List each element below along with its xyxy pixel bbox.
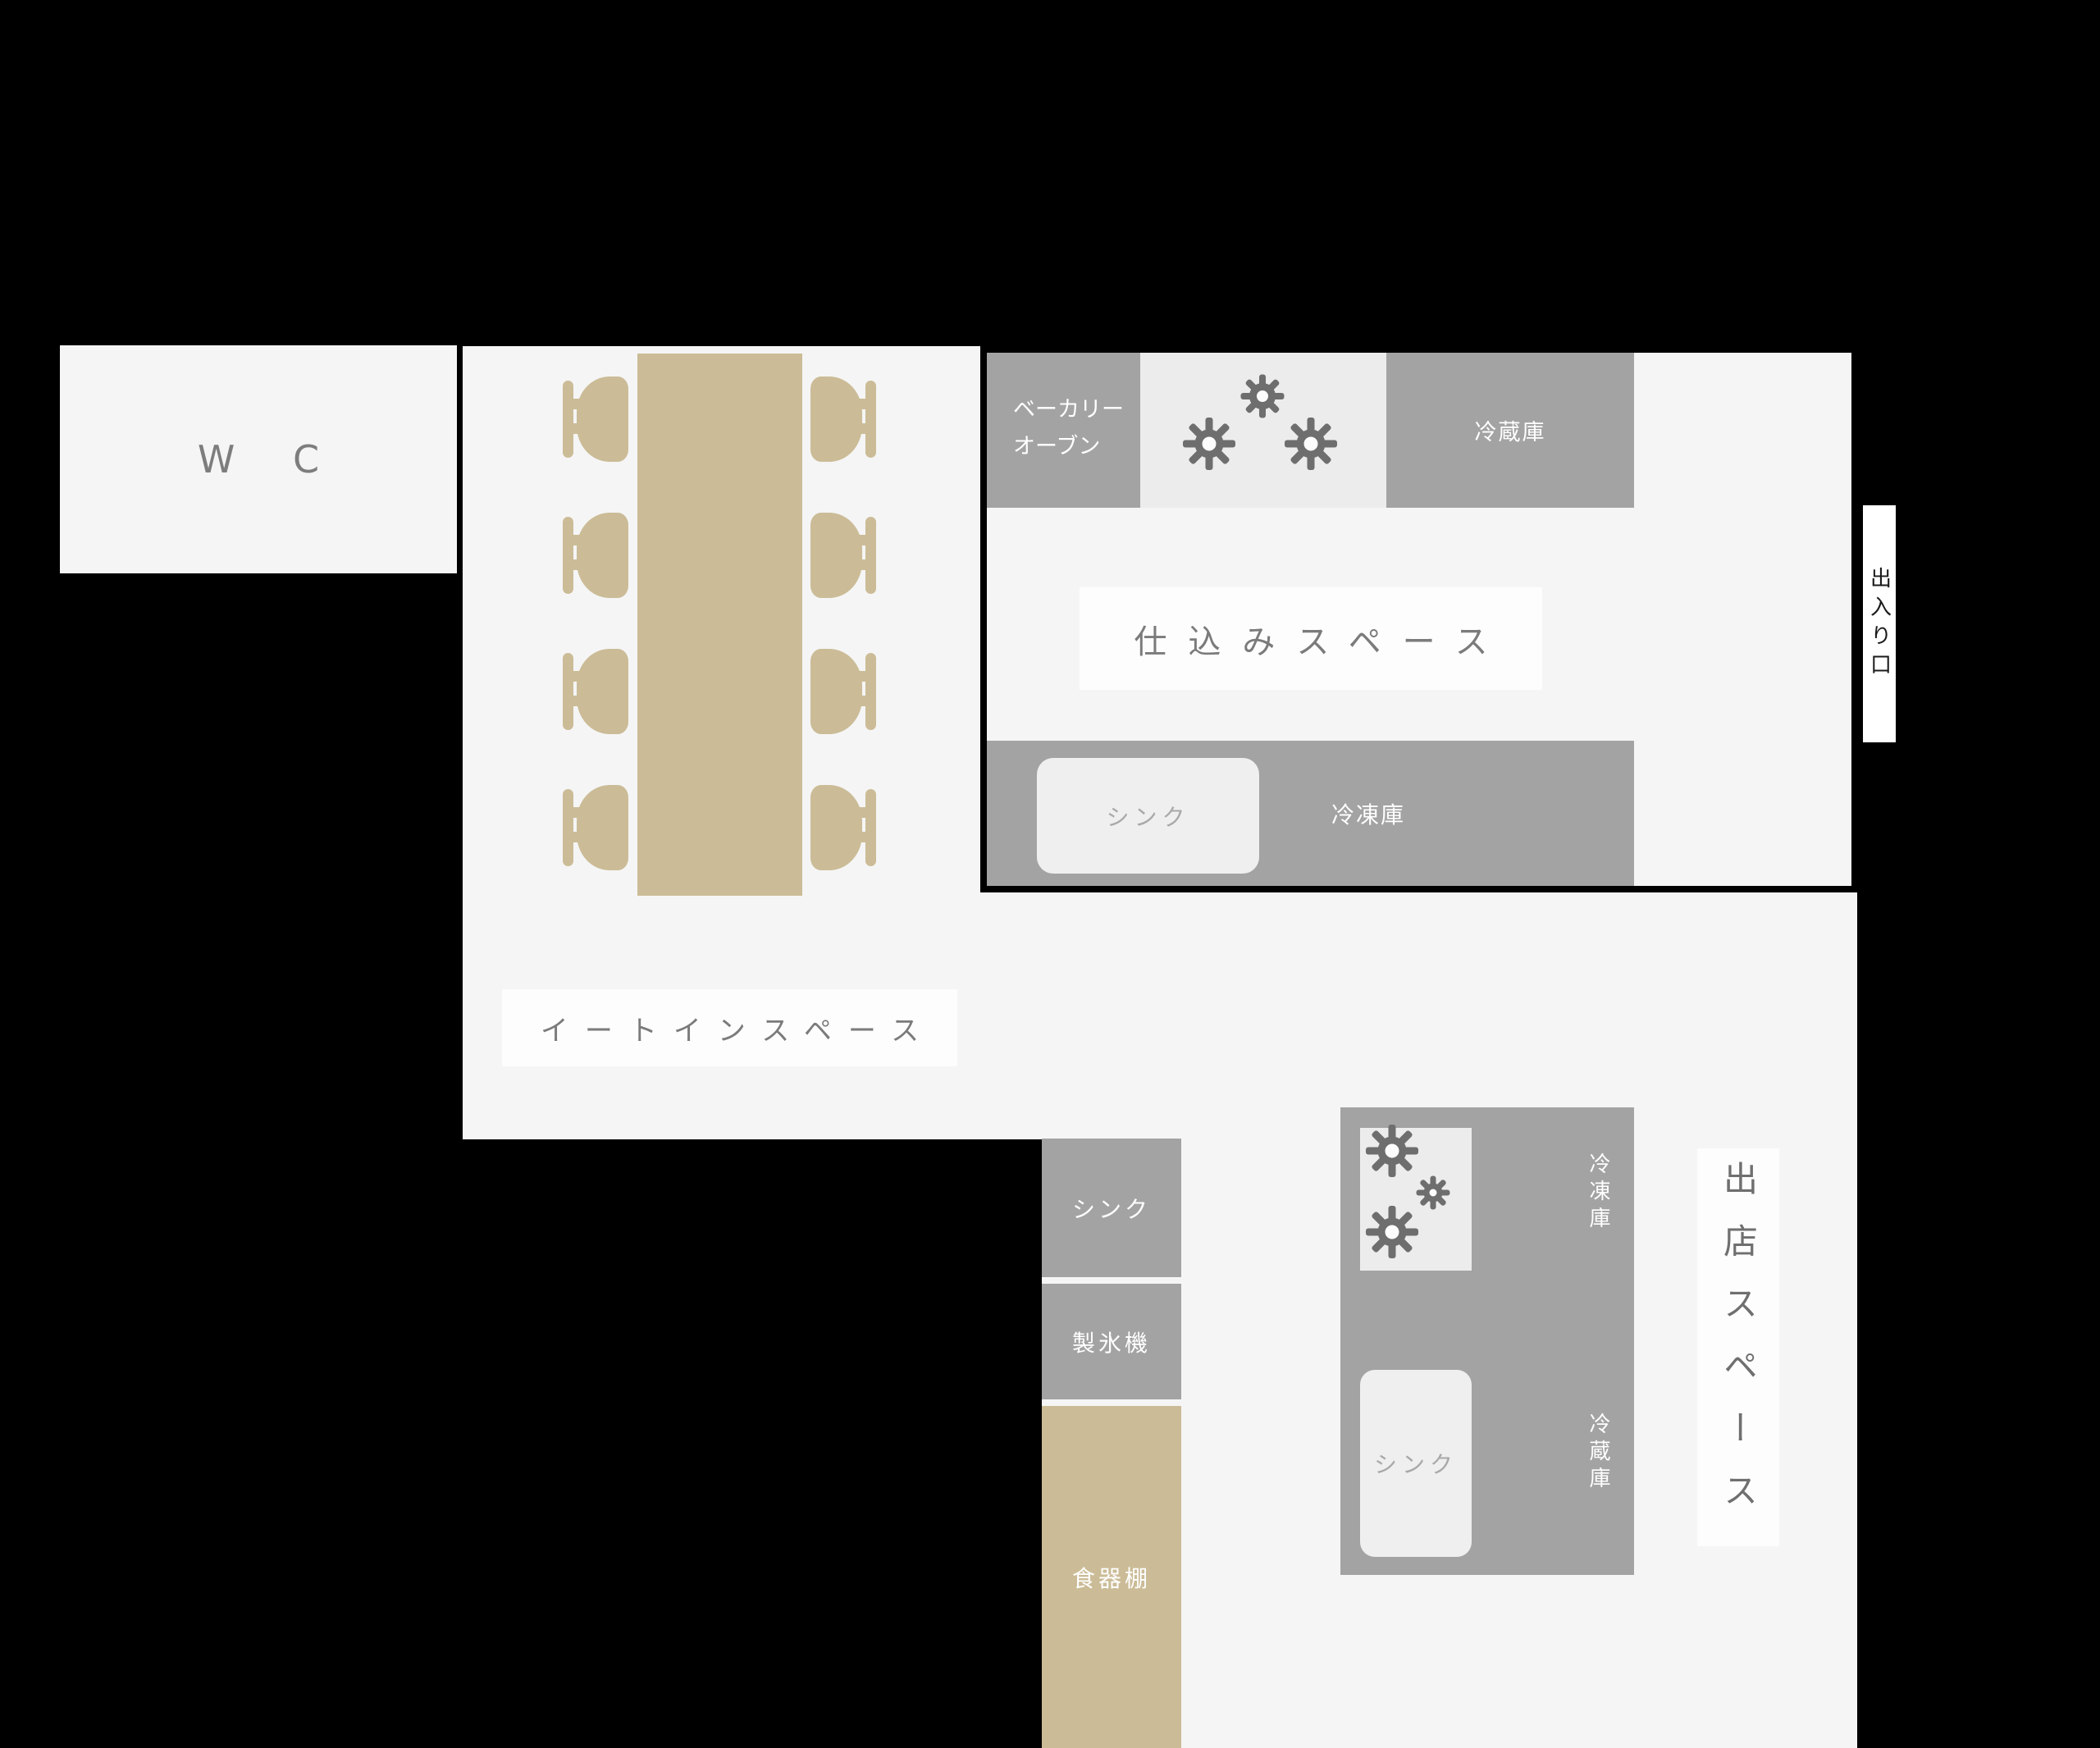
bakery-oven-label-line1: ベーカリー bbox=[1013, 392, 1124, 429]
dining-table bbox=[637, 354, 802, 896]
ice-maker-label: 製氷機 bbox=[1072, 1326, 1151, 1358]
sink: シンク bbox=[1037, 758, 1259, 874]
freezer-counter-block: シンク 冷凍庫 bbox=[987, 741, 1634, 886]
cupboard-label: 食器棚 bbox=[1072, 1561, 1151, 1594]
cupboard-block: 食器棚 bbox=[1042, 1406, 1181, 1748]
gas-burner-icon bbox=[1416, 1175, 1449, 1209]
gas-burner-icon bbox=[1183, 418, 1235, 470]
gas-burner-icon bbox=[1240, 374, 1284, 418]
chair-back bbox=[865, 381, 876, 458]
shop-sink: シンク bbox=[1360, 1370, 1472, 1557]
chair bbox=[563, 513, 628, 598]
chair-seat bbox=[577, 785, 628, 870]
chair bbox=[810, 377, 876, 462]
entrance: 出入り口 bbox=[1863, 505, 1896, 742]
chair-back bbox=[865, 517, 876, 594]
wc-room: W C bbox=[60, 345, 457, 573]
chair-seat bbox=[810, 513, 862, 598]
chair-back bbox=[865, 789, 876, 866]
chair-seat bbox=[810, 649, 862, 734]
shop-stove-block bbox=[1360, 1128, 1472, 1271]
floor-plan: W C イートインスペース ベーカリー オーブン 冷蔵庫 bbox=[0, 0, 2100, 1748]
stove-block bbox=[1140, 353, 1386, 508]
ice-maker-block: 製氷機 bbox=[1042, 1284, 1181, 1399]
bakery-oven-label-line2: オーブン bbox=[1013, 429, 1124, 466]
wc-label: W C bbox=[175, 437, 342, 481]
shop-freezer-label: 冷凍庫 bbox=[1583, 1152, 1614, 1234]
shop-sink-label: シンク bbox=[1374, 1447, 1458, 1480]
chair-back bbox=[563, 789, 573, 866]
bakery-oven-block: ベーカリー オーブン bbox=[987, 353, 1140, 508]
freezer-label: 冷凍庫 bbox=[1315, 741, 1422, 886]
chair bbox=[810, 649, 876, 734]
chair bbox=[810, 513, 876, 598]
prep-room: ベーカリー オーブン 冷蔵庫 シンク 冷凍庫 仕込みスペース bbox=[980, 346, 1858, 892]
chair bbox=[563, 785, 628, 870]
prep-space-label-text: 仕込みスペース bbox=[1112, 615, 1509, 663]
shop-fridge-label: 冷蔵庫 bbox=[1583, 1413, 1614, 1494]
eat-in-space-label-text: イートインスペース bbox=[524, 1008, 935, 1048]
shop-space-label-text: 出店スペース bbox=[1714, 1161, 1764, 1535]
gas-burner-icon bbox=[1366, 1206, 1418, 1258]
chair-seat bbox=[577, 649, 628, 734]
chair-seat bbox=[577, 513, 628, 598]
sink-label: シンク bbox=[1106, 800, 1189, 833]
entrance-label: 出入り口 bbox=[1865, 567, 1895, 682]
gas-burner-icon bbox=[1285, 418, 1337, 470]
sink-block-label: シンク bbox=[1072, 1192, 1151, 1225]
chair-seat bbox=[810, 377, 862, 462]
chair-back bbox=[563, 517, 573, 594]
gas-burner-icon bbox=[1366, 1125, 1418, 1177]
chair bbox=[810, 785, 876, 870]
sink-block: シンク bbox=[1042, 1139, 1181, 1277]
chair-back bbox=[563, 653, 573, 730]
chair-back bbox=[563, 381, 573, 458]
shop-appliance-block: シンク 冷凍庫 冷蔵庫 bbox=[1340, 1107, 1634, 1575]
bakery-oven-label: ベーカリー オーブン bbox=[1013, 392, 1124, 465]
chair-seat bbox=[577, 377, 628, 462]
prep-space-label: 仕込みスペース bbox=[1080, 587, 1542, 690]
chair-back bbox=[865, 653, 876, 730]
chair-seat bbox=[810, 785, 862, 870]
eat-in-space-label: イートインスペース bbox=[502, 989, 957, 1066]
refrigerator-label: 冷蔵庫 bbox=[1475, 414, 1546, 446]
shop-space-label: 出店スペース bbox=[1697, 1148, 1779, 1546]
chair bbox=[563, 377, 628, 462]
refrigerator-block: 冷蔵庫 bbox=[1386, 353, 1634, 508]
chair bbox=[563, 649, 628, 734]
